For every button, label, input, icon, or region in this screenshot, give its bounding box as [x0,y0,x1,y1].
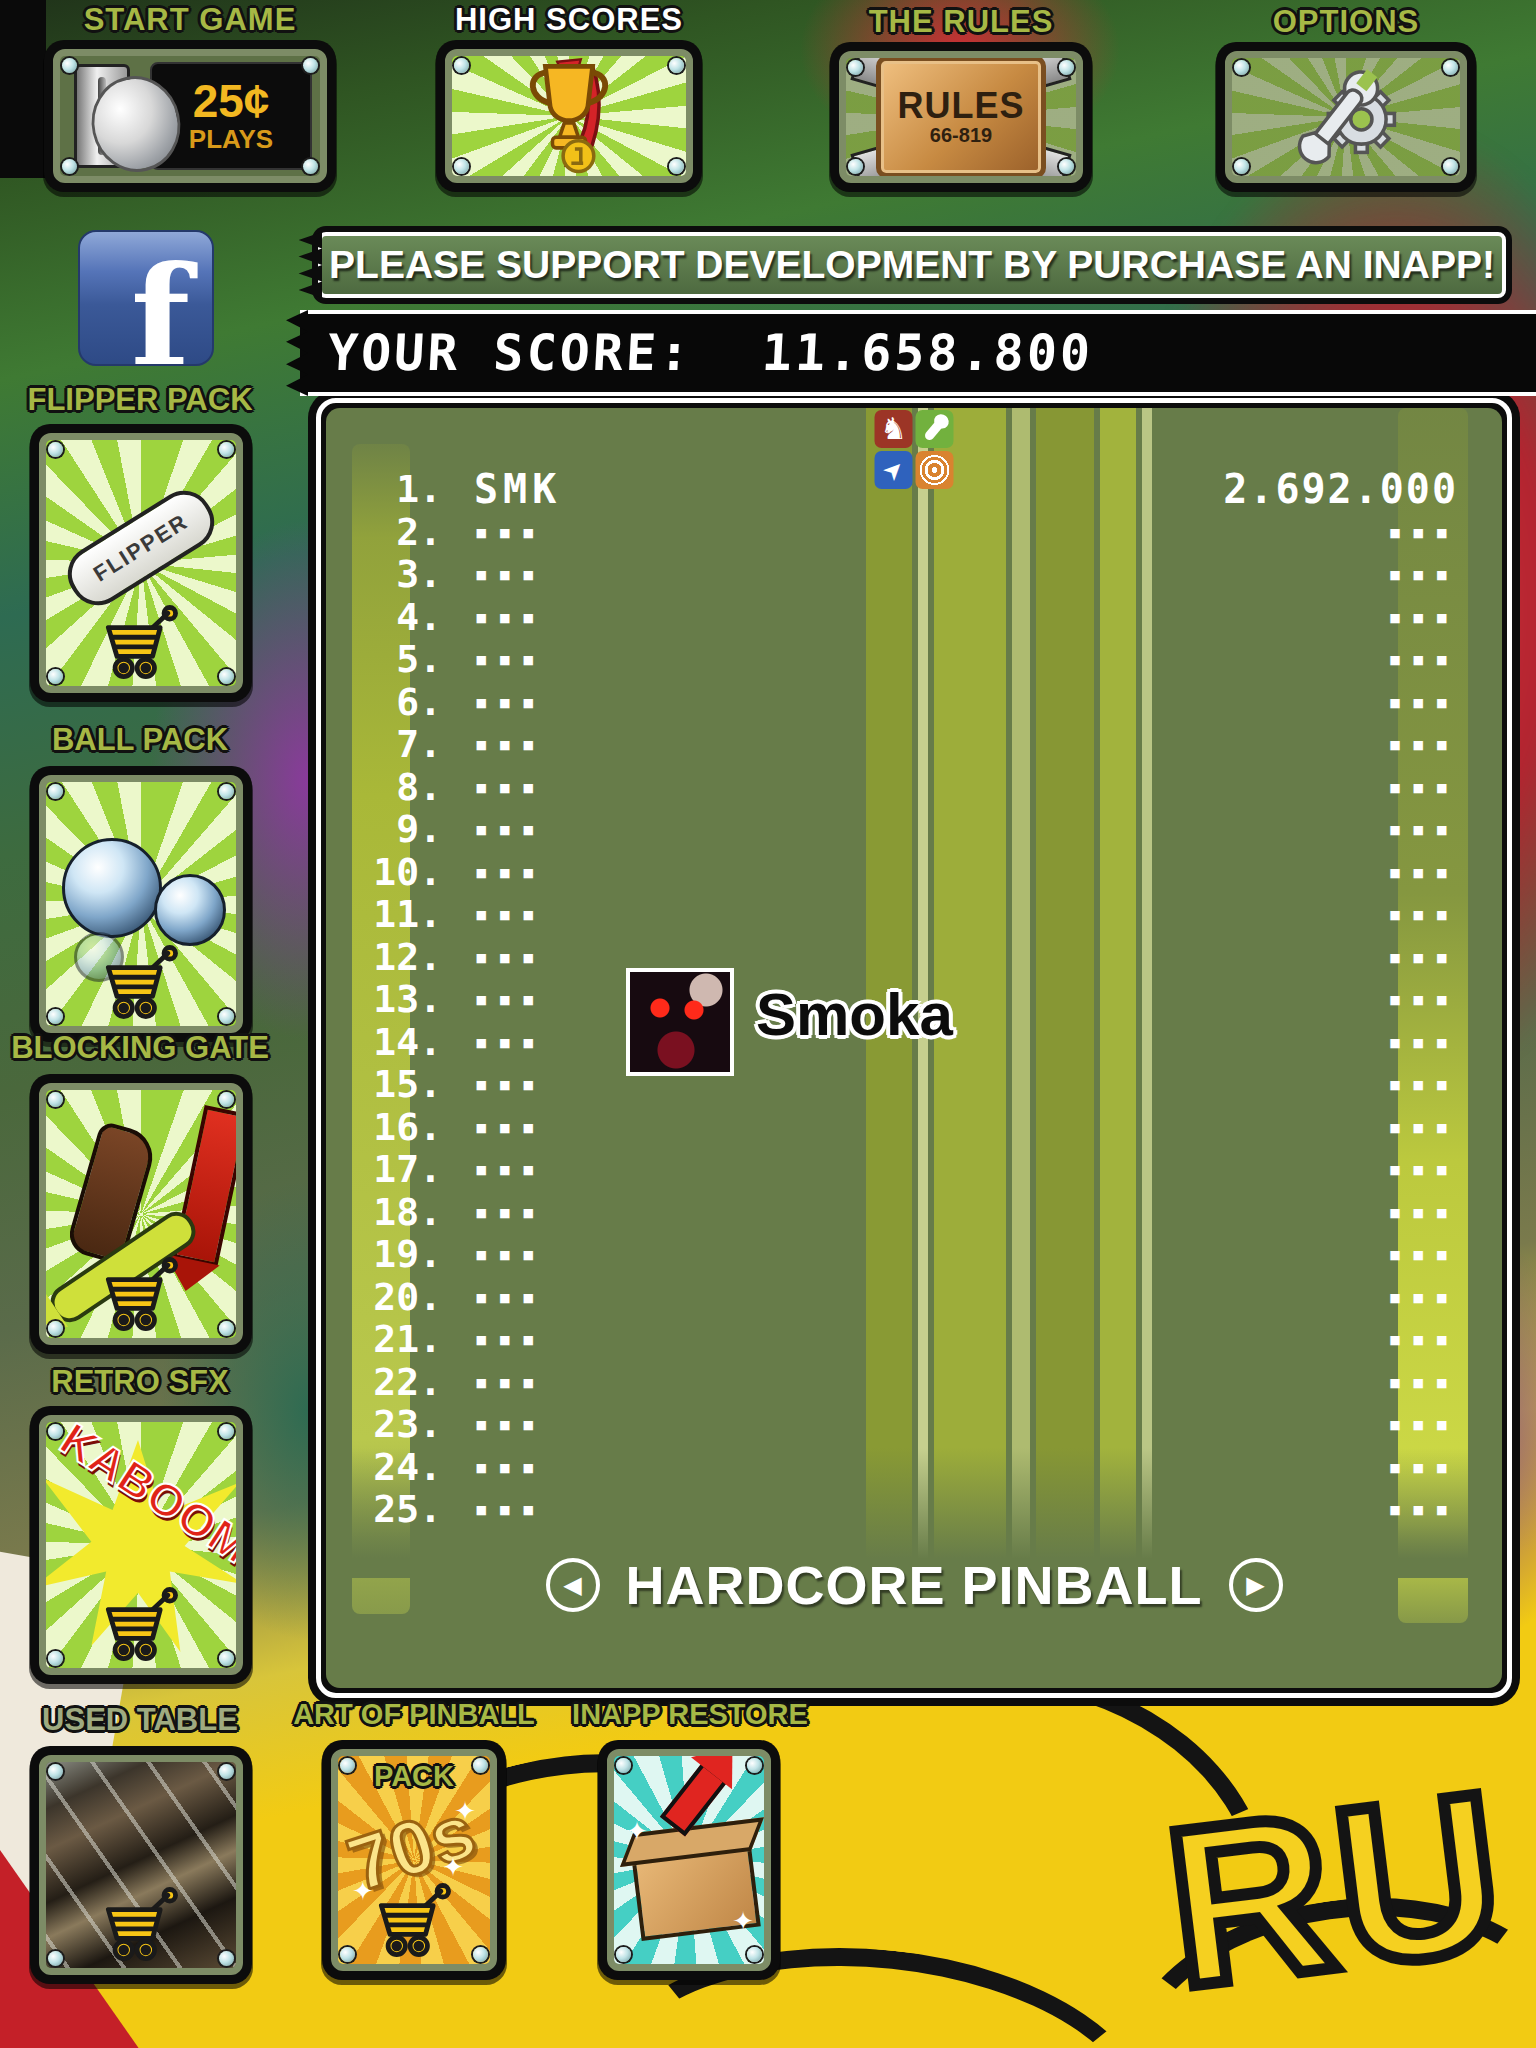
used-table-button[interactable] [30,1746,252,1984]
leaderboard-panel: ♞ ➤ 1. SMK 2.692.000 2. ▪▪▪ ▪▪▪ 3. ▪▪▪ ▪… [308,390,1520,1706]
leaderboard-row: 22. ▪▪▪ ▪▪▪ [326,1361,1502,1404]
sparkle-icon: ✦ [732,1906,754,1937]
facebook-button[interactable]: f [78,230,214,366]
row-score: ▪▪▪ [1388,851,1458,894]
graffiti-text: RU [1154,1740,1520,2038]
art-of-pinball-label-line2: PACK [322,1760,506,1793]
row-score: ▪▪▪ [1388,1191,1458,1234]
leaderboard-row: 20. ▪▪▪ ▪▪▪ [326,1276,1502,1319]
sparkle-icon: ✦ [626,1816,648,1847]
row-score: ▪▪▪ [1388,1276,1458,1319]
the-rules-button[interactable]: THE RULES RULES 66-819 [830,4,1092,192]
row-player: ▪▪▪ [474,978,544,1021]
leaderboard-row: 25. ▪▪▪ ▪▪▪ [326,1488,1502,1531]
screw-icon [454,159,469,174]
blocking-gate-button[interactable] [30,1074,252,1354]
used-table-label: USED TABLE [8,1702,272,1738]
gear-wrench-icon [1287,58,1405,176]
row-score: ▪▪▪ [1388,936,1458,979]
blocking-gate-label: BLOCKING GATE [8,1030,272,1066]
screw-icon [219,1321,234,1336]
screw-icon [219,669,234,684]
row-rank: 17. [326,1148,442,1191]
leaderboard-row: 24. ▪▪▪ ▪▪▪ [326,1446,1502,1489]
screw-icon [340,1947,355,1962]
screw-icon [616,1947,631,1962]
row-score: ▪▪▪ [1388,978,1458,1021]
leaderboard-row: 15. ▪▪▪ ▪▪▪ [326,1063,1502,1106]
row-score: ▪▪▪ [1388,893,1458,936]
leaderboard-row: 17. ▪▪▪ ▪▪▪ [326,1148,1502,1191]
screw-icon [1059,60,1074,75]
leaderboard-row: 10. ▪▪▪ ▪▪▪ [326,851,1502,894]
screw-icon [219,1424,234,1439]
leaderboard-row: 23. ▪▪▪ ▪▪▪ [326,1403,1502,1446]
coin-plays: PLAYS [189,124,273,155]
inapp-restore-label: INAPP RESTORE [568,1698,812,1731]
row-score: ▪▪▪ [1388,553,1458,596]
row-rank: 19. [326,1233,442,1276]
cart-icon [93,1586,189,1664]
row-rank: 23. [326,1403,442,1446]
leaderboard-row: 5. ▪▪▪ ▪▪▪ [326,638,1502,681]
row-rank: 18. [326,1191,442,1234]
screw-icon [473,1947,488,1962]
cart-icon [93,1256,189,1334]
player-name: Smoka [756,980,953,1049]
row-player: ▪▪▪ [474,808,544,851]
screw-icon [219,784,234,799]
high-scores-label: HIGH SCORES [436,2,702,38]
screw-icon [303,159,318,174]
screw-icon [62,58,77,73]
row-player: ▪▪▪ [474,511,544,554]
row-rank: 6. [326,681,442,724]
row-score: ▪▪▪ [1388,766,1458,809]
cart-icon [93,944,189,1022]
player-avatar [626,968,734,1076]
ball-pack-button[interactable] [30,766,252,1042]
row-player: ▪▪▪ [474,1361,544,1404]
row-player: ▪▪▪ [474,1488,544,1531]
coin-price: 25¢ [193,78,270,124]
row-score: ▪▪▪ [1388,1361,1458,1404]
row-score: ▪▪▪ [1388,638,1458,681]
options-button[interactable]: OPTIONS [1216,4,1476,192]
screw-icon [1059,159,1074,174]
leaderboard-row: 2. ▪▪▪ ▪▪▪ [326,511,1502,554]
inapp-restore-button[interactable]: ✦ ✦ [598,1740,780,1980]
screw-icon [48,784,63,799]
leaderboard-row: 7. ▪▪▪ ▪▪▪ [326,723,1502,766]
flipper-pack-label: FLIPPER PACK [8,382,272,418]
row-score: ▪▪▪ [1388,808,1458,851]
screw-icon [48,1009,63,1024]
row-score: ▪▪▪ [1388,1063,1458,1106]
row-score: ▪▪▪ [1388,1148,1458,1191]
flipper-pack-button[interactable]: FLIPPER [30,424,252,702]
row-player: ▪▪▪ [474,1318,544,1361]
your-score-bar: YOUR SCORE: 11.658.800 [300,314,1536,392]
row-player: ▪▪▪ [474,1446,544,1489]
screen: RU START GAME 25¢ PLAYS HIGH SCORES THE … [0,0,1536,2048]
row-rank: 4. [326,596,442,639]
sparkle-icon: ✦ [454,1796,476,1827]
screw-icon [48,1951,63,1966]
trophy-icon [509,57,629,175]
rocket-icon: ➤ [875,451,913,489]
row-rank: 2. [326,511,442,554]
screw-icon [62,159,77,174]
row-rank: 9. [326,808,442,851]
screw-icon [669,58,684,73]
screw-icon [747,1758,762,1773]
screw-icon [454,58,469,73]
screw-icon [48,1651,63,1666]
row-rank: 24. [326,1446,442,1489]
row-player: ▪▪▪ [474,553,544,596]
background-black-corner [0,0,46,178]
screw-icon [1443,159,1458,174]
previous-table-button[interactable]: ◀ [546,1558,600,1612]
row-score: ▪▪▪ [1388,723,1458,766]
row-player: ▪▪▪ [474,681,544,724]
row-score: ▪▪▪ [1388,1233,1458,1276]
options-label: OPTIONS [1216,4,1476,40]
row-rank: 21. [326,1318,442,1361]
row-player: ▪▪▪ [474,766,544,809]
row-player: ▪▪▪ [474,1191,544,1234]
row-rank: 10. [326,851,442,894]
row-player: SMK [474,468,561,511]
leaderboard-row: 11. ▪▪▪ ▪▪▪ [326,893,1502,936]
facebook-icon: f [131,235,190,366]
row-score: 2.692.000 [1223,468,1458,511]
rules-plaque-subtitle: 66-819 [930,124,992,147]
row-rank: 20. [326,1276,442,1319]
row-rank: 11. [326,893,442,936]
art-of-pinball-label: ART OF PINBALL [292,1698,536,1731]
leaderboard-row: 12. ▪▪▪ ▪▪▪ [326,936,1502,979]
row-score: ▪▪▪ [1388,1021,1458,1064]
leaderboard-panel-body: ♞ ➤ 1. SMK 2.692.000 2. ▪▪▪ ▪▪▪ 3. ▪▪▪ ▪… [326,408,1502,1688]
high-scores-button[interactable]: HIGH SCORES [436,2,702,192]
screw-icon [48,1321,63,1336]
row-player: ▪▪▪ [474,936,544,979]
row-player: ▪▪▪ [474,1148,544,1191]
table-title: HARDCORE PINBALL [626,1554,1203,1616]
row-rank: 5. [326,638,442,681]
target-icon [916,451,954,489]
row-score: ▪▪▪ [1388,1488,1458,1531]
row-player: ▪▪▪ [474,596,544,639]
screw-icon [219,1009,234,1024]
start-game-label: START GAME [44,2,336,38]
row-rank: 1. [326,468,442,511]
leaderboard-row: 16. ▪▪▪ ▪▪▪ [326,1106,1502,1149]
row-player: ▪▪▪ [474,893,544,936]
row-score: ▪▪▪ [1388,511,1458,554]
ball-pack-label: BALL PACK [8,722,272,758]
leaderboard-row: 21. ▪▪▪ ▪▪▪ [326,1318,1502,1361]
row-score: ▪▪▪ [1388,1403,1458,1446]
screw-icon [219,1764,234,1779]
row-player: ▪▪▪ [474,1063,544,1106]
screw-icon [219,1092,234,1107]
leaderboard-row: 6. ▪▪▪ ▪▪▪ [326,681,1502,724]
screw-icon [219,442,234,457]
the-rules-label: THE RULES [830,4,1092,40]
row-score: ▪▪▪ [1388,1318,1458,1361]
screw-icon [1443,60,1458,75]
row-rank: 22. [326,1361,442,1404]
start-game-button[interactable]: START GAME 25¢ PLAYS [44,2,336,192]
cart-icon [93,1886,189,1964]
row-player: ▪▪▪ [474,1233,544,1276]
pinball-icon [154,874,226,946]
support-banner: PLEASE SUPPORT DEVELOPMENT BY PURCHASE A… [312,226,1512,304]
row-player: ▪▪▪ [474,723,544,766]
row-rank: 16. [326,1106,442,1149]
screw-icon [747,1947,762,1962]
row-player: ▪▪▪ [474,1021,544,1064]
leaderboard-row: 18. ▪▪▪ ▪▪▪ [326,1191,1502,1234]
sparkle-icon: ✦ [442,1852,464,1883]
support-banner-inner: PLEASE SUPPORT DEVELOPMENT BY PURCHASE A… [318,232,1506,298]
table-selector: ◀ HARDCORE PINBALL ▶ [326,1554,1502,1616]
row-rank: 25. [326,1488,442,1531]
screw-icon [848,60,863,75]
screw-icon [1234,159,1249,174]
screw-icon [48,1092,63,1107]
row-score: ▪▪▪ [1388,1446,1458,1489]
screw-icon [48,1424,63,1439]
screw-icon [219,1951,234,1966]
row-rank: 3. [326,553,442,596]
support-banner-text: PLEASE SUPPORT DEVELOPMENT BY PURCHASE A… [329,243,1495,287]
your-score-value: 11.658.800 [761,324,1095,382]
leaderboard-panel-border: ♞ ➤ 1. SMK 2.692.000 2. ▪▪▪ ▪▪▪ 3. ▪▪▪ ▪… [316,398,1512,1698]
screw-icon [48,1764,63,1779]
leaderboard-row: 3. ▪▪▪ ▪▪▪ [326,553,1502,596]
screw-icon [303,58,318,73]
leaderboard-row: 4. ▪▪▪ ▪▪▪ [326,596,1502,639]
leaderboard-row: 19. ▪▪▪ ▪▪▪ [326,1233,1502,1276]
screw-icon [48,442,63,457]
chess-knight-icon: ♞ [875,410,913,448]
row-player: ▪▪▪ [474,638,544,681]
cart-icon [93,604,189,682]
screw-icon [616,1758,631,1773]
leaderboard-row: 8. ▪▪▪ ▪▪▪ [326,766,1502,809]
cart-icon [366,1882,462,1960]
screw-icon [848,159,863,174]
row-rank: 7. [326,723,442,766]
row-rank: 12. [326,936,442,979]
club-icon [916,410,954,448]
row-player: ▪▪▪ [474,1403,544,1446]
rules-plaque: RULES 66-819 [876,56,1046,178]
row-rank: 14. [326,1021,442,1064]
retro-sfx-button[interactable]: KABOOM [30,1406,252,1684]
screw-icon [48,669,63,684]
row-score: ▪▪▪ [1388,1106,1458,1149]
row-rank: 15. [326,1063,442,1106]
row-rank: 13. [326,978,442,1021]
achievement-icons: ♞ ➤ [875,410,954,489]
rules-plaque-title: RULES [897,88,1024,124]
screw-icon [669,159,684,174]
retro-sfx-label: RETRO SFX [8,1364,272,1400]
row-player: ▪▪▪ [474,1106,544,1149]
row-score: ▪▪▪ [1388,681,1458,724]
row-player: ▪▪▪ [474,851,544,894]
screw-icon [219,1651,234,1666]
leaderboard-row: 9. ▪▪▪ ▪▪▪ [326,808,1502,851]
row-score: ▪▪▪ [1388,596,1458,639]
screw-icon [1234,60,1249,75]
your-score-label: YOUR SCORE: [326,324,693,382]
pinball-icon [62,838,162,938]
next-table-button[interactable]: ▶ [1229,1558,1283,1612]
row-player: ▪▪▪ [474,1276,544,1319]
row-rank: 8. [326,766,442,809]
